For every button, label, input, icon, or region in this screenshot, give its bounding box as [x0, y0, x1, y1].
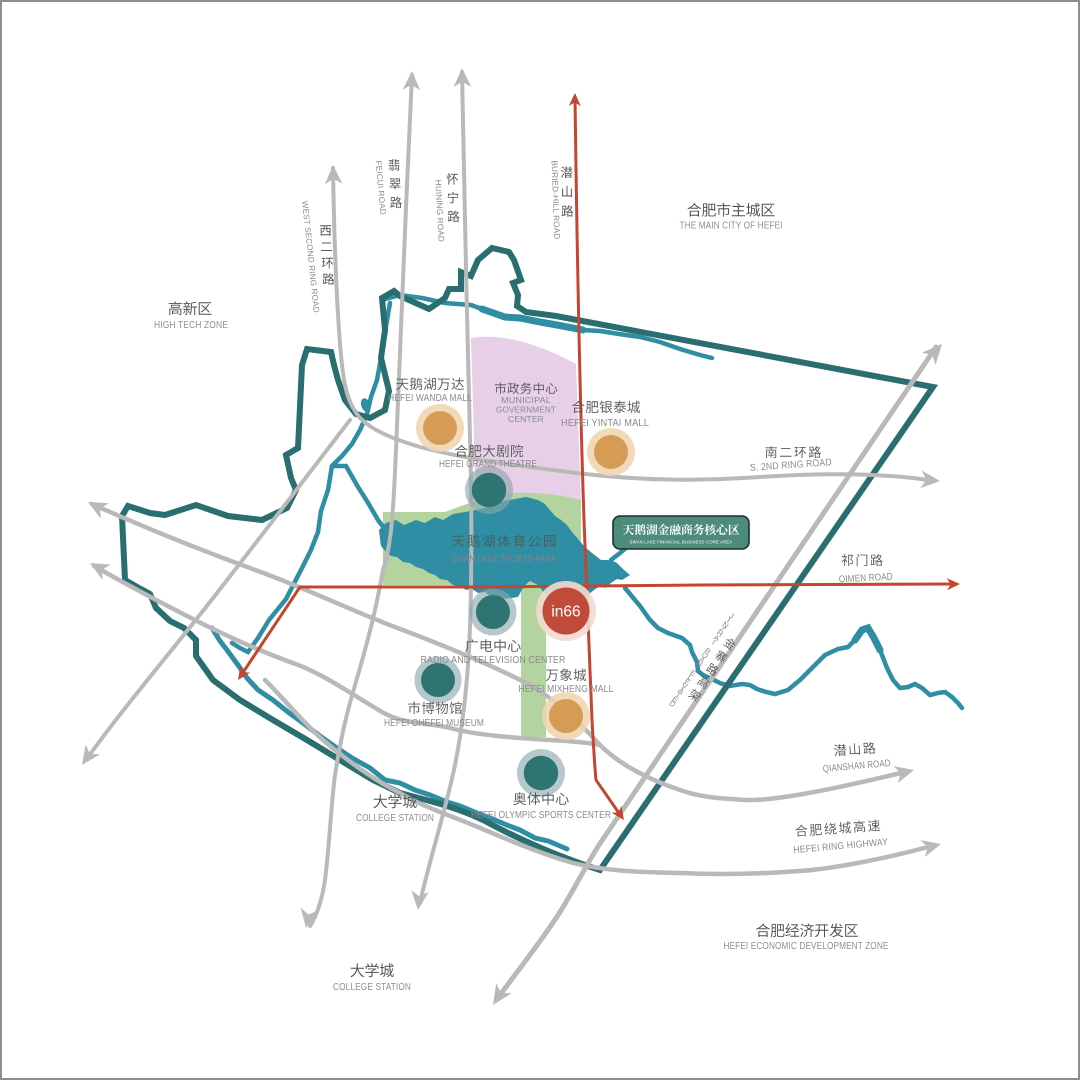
- svg-text:HEFEI OLYMPIC SPORTS CENTER: HEFEI OLYMPIC SPORTS CENTER: [471, 810, 611, 821]
- svg-text:COLLEGE STATION: COLLEGE STATION: [356, 813, 434, 824]
- svg-text:HEFEI OHEFEI MUSEUM: HEFEI OHEFEI MUSEUM: [384, 718, 484, 729]
- svg-text:MUNICIPAL: MUNICIPAL: [501, 395, 551, 405]
- svg-text:HEFEI WANDA MALL: HEFEI WANDA MALL: [388, 393, 472, 404]
- svg-text:CENTER: CENTER: [508, 414, 544, 424]
- svg-text:RADIO AND TELEVISION CENTER: RADIO AND TELEVISION CENTER: [421, 655, 566, 666]
- svg-text:HEFEI GRAND THEATRE: HEFEI GRAND THEATRE: [439, 459, 537, 470]
- svg-text:HEFEI ECONOMIC DEVELOPMENT ZON: HEFEI ECONOMIC DEVELOPMENT ZONE: [724, 941, 889, 952]
- svg-text:GOVERNMENT: GOVERNMENT: [496, 405, 557, 415]
- svg-text:in66: in66: [551, 604, 580, 621]
- svg-text:HEFEI YINTAI MALL: HEFEI YINTAI MALL: [561, 418, 649, 429]
- svg-text:COLLEGE STATION: COLLEGE STATION: [333, 982, 411, 993]
- svg-text:HEFEI MIXHENG MALL: HEFEI MIXHENG MALL: [519, 684, 614, 695]
- svg-text:SWAN LAKE FINANCIAL BUSINESS C: SWAN LAKE FINANCIAL BUSINESS CORE AREA: [630, 540, 733, 545]
- svg-text:THE MAIN CITY OF HEFEI: THE MAIN CITY OF HEFEI: [680, 221, 783, 232]
- svg-text:SWAN LAKE SPORTS PARK: SWAN LAKE SPORTS PARK: [452, 554, 557, 565]
- svg-text:HIGH TECH ZONE: HIGH TECH ZONE: [154, 320, 228, 331]
